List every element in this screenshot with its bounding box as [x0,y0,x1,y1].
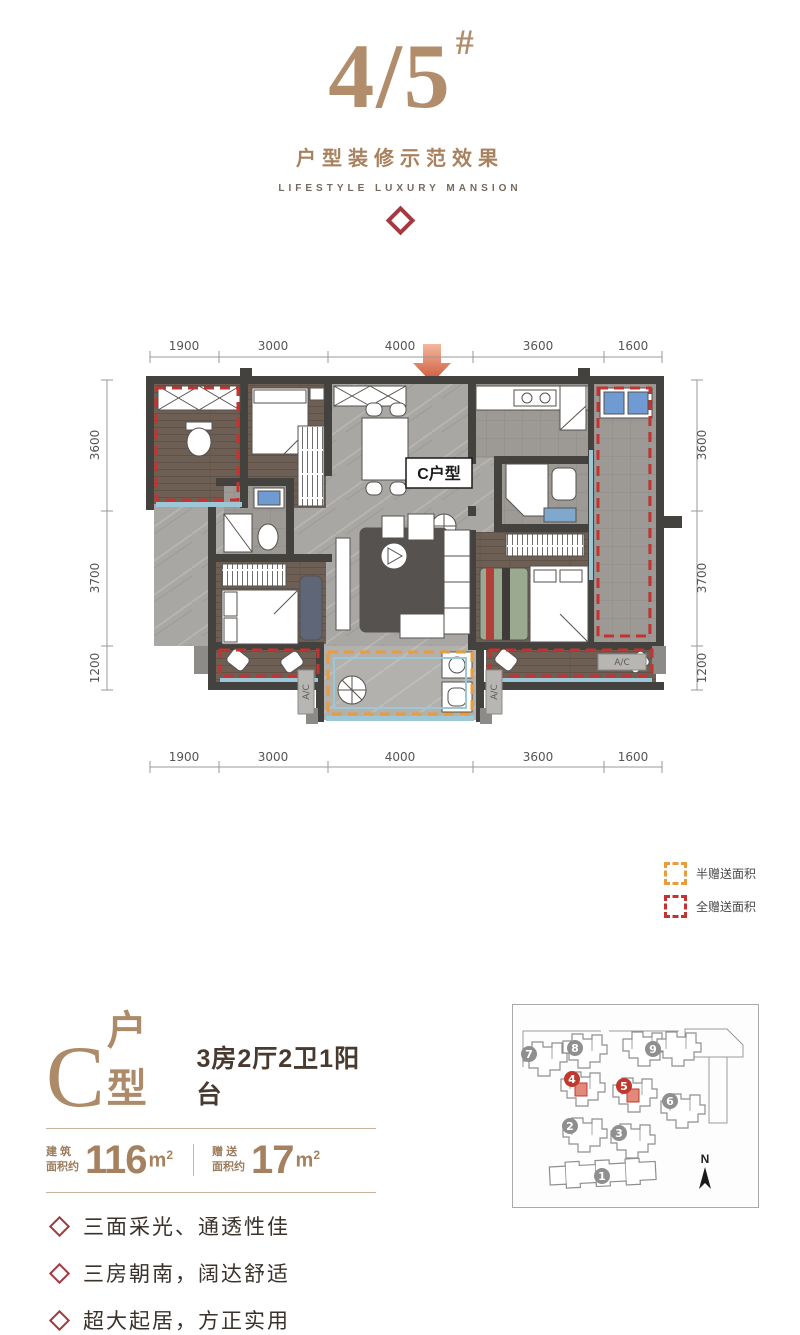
ac-label: A/C [490,684,500,699]
svg-text:3: 3 [615,1127,623,1140]
page-subtitle: 户型装修示范效果 [0,142,800,171]
full-gift-swatch-icon [664,895,687,918]
unit-type-suffix: 户型 [107,998,183,1114]
legend-label: 半赠送面积 [696,865,756,882]
building-marker: 3 [611,1125,627,1141]
unit-name: C 户型 3房2厅2卫1阳台 [46,998,376,1114]
feature-list: 三面采光、通透性佳 三房朝南，阔达舒适 超大起居，方正实用 [46,1211,376,1335]
dim-label: 1600 [618,750,649,764]
feature-text: 三房朝南，阔达舒适 [83,1258,290,1288]
legend-item-half-gift: 半赠送面积 [664,862,756,885]
svg-text:4: 4 [568,1073,576,1086]
building-marker: 2 [562,1118,578,1134]
build-area-unit: m2 [149,1148,173,1173]
svg-text:7: 7 [525,1048,533,1061]
dim-label: 1600 [618,339,649,353]
build-area-label: 建 筑面积约 [46,1145,79,1175]
divider-line [46,1128,376,1129]
dim-label: 3600 [88,430,102,461]
svg-text:8: 8 [571,1042,579,1055]
svg-text:6: 6 [666,1095,674,1108]
building-marker: 1 [594,1168,610,1184]
building-marker: 5 [616,1078,632,1094]
svg-text:5: 5 [620,1080,628,1093]
unit-label: C户型 [417,464,461,483]
gift-area-label: 赠 送面积约 [212,1145,245,1175]
dim-label: 1200 [695,653,709,684]
dim-label: 3600 [695,430,709,461]
dim-label: 4000 [385,339,416,353]
unit-info-panel: C 户型 3房2厅2卫1阳台 建 筑面积约 116 m2 赠 送面积约 17 m… [46,998,376,1335]
dim-label: 3000 [258,750,289,764]
dim-label: 3700 [88,563,102,594]
building-marker: 6 [662,1093,678,1109]
vertical-divider [193,1144,194,1176]
legend: 半赠送面积 全赠送面积 [664,862,756,928]
ac-label: A/C [302,684,312,699]
dim-label: 3000 [258,339,289,353]
legend-item-full-gift: 全赠送面积 [664,895,756,918]
page-title: 4/5# [0,30,800,122]
feature-text: 三面采光、通透性佳 [83,1211,290,1241]
svg-text:N: N [701,1152,710,1166]
tagline: LIFESTYLE LUXURY MANSION [0,183,800,194]
unit-label-box: C户型 [406,458,472,488]
floor-plan: A/C A/C A/C C户型 1900 3000 4000 3600 1600… [0,330,800,800]
building-marker: 9 [645,1041,661,1057]
site-buildings [523,1032,705,1189]
unit-layout-text: 3房2厅2卫1阳台 [196,1039,376,1111]
feature-item: 超大起居，方正实用 [46,1305,376,1335]
unit-letter: C [46,1042,105,1114]
title-hash: # [456,22,476,62]
divider-line [46,1192,376,1193]
header: 4/5# 户型装修示范效果 LIFESTYLE LUXURY MANSION [0,30,800,231]
feature-item: 三房朝南，阔达舒适 [46,1258,376,1288]
building-marker: 7 [521,1046,537,1062]
dim-label: 3700 [695,563,709,594]
site-map: 7 8 9 4 5 6 2 3 [512,1004,759,1208]
svg-text:9: 9 [649,1043,657,1056]
dim-label: 4000 [385,750,416,764]
dim-label: 3600 [523,750,554,764]
svg-text:1: 1 [598,1170,606,1183]
diamond-bullet-icon [49,1309,70,1330]
area-row: 建 筑面积约 116 m2 赠 送面积约 17 m2 [46,1142,376,1178]
feature-item: 三面采光、通透性佳 [46,1211,376,1241]
legend-label: 全赠送面积 [696,898,756,915]
svg-text:2: 2 [566,1120,574,1133]
building-marker: 4 [564,1071,580,1087]
north-arrow: N [699,1152,711,1189]
dim-label: 3600 [523,339,554,353]
gift-area-unit: m2 [296,1148,320,1173]
building-marker: 8 [567,1040,583,1056]
dim-label: 1900 [169,339,200,353]
dim-label: 1900 [169,750,200,764]
gift-area-value: 17 [251,1138,294,1183]
feature-text: 超大起居，方正实用 [83,1305,290,1335]
half-gift-swatch-icon [664,862,687,885]
diamond-bullet-icon [49,1262,70,1283]
build-area-value: 116 [85,1138,147,1183]
ac-label: A/C [614,658,629,668]
diamond-ornament-icon [385,206,415,236]
diamond-bullet-icon [49,1215,70,1236]
dim-label: 1200 [88,653,102,684]
